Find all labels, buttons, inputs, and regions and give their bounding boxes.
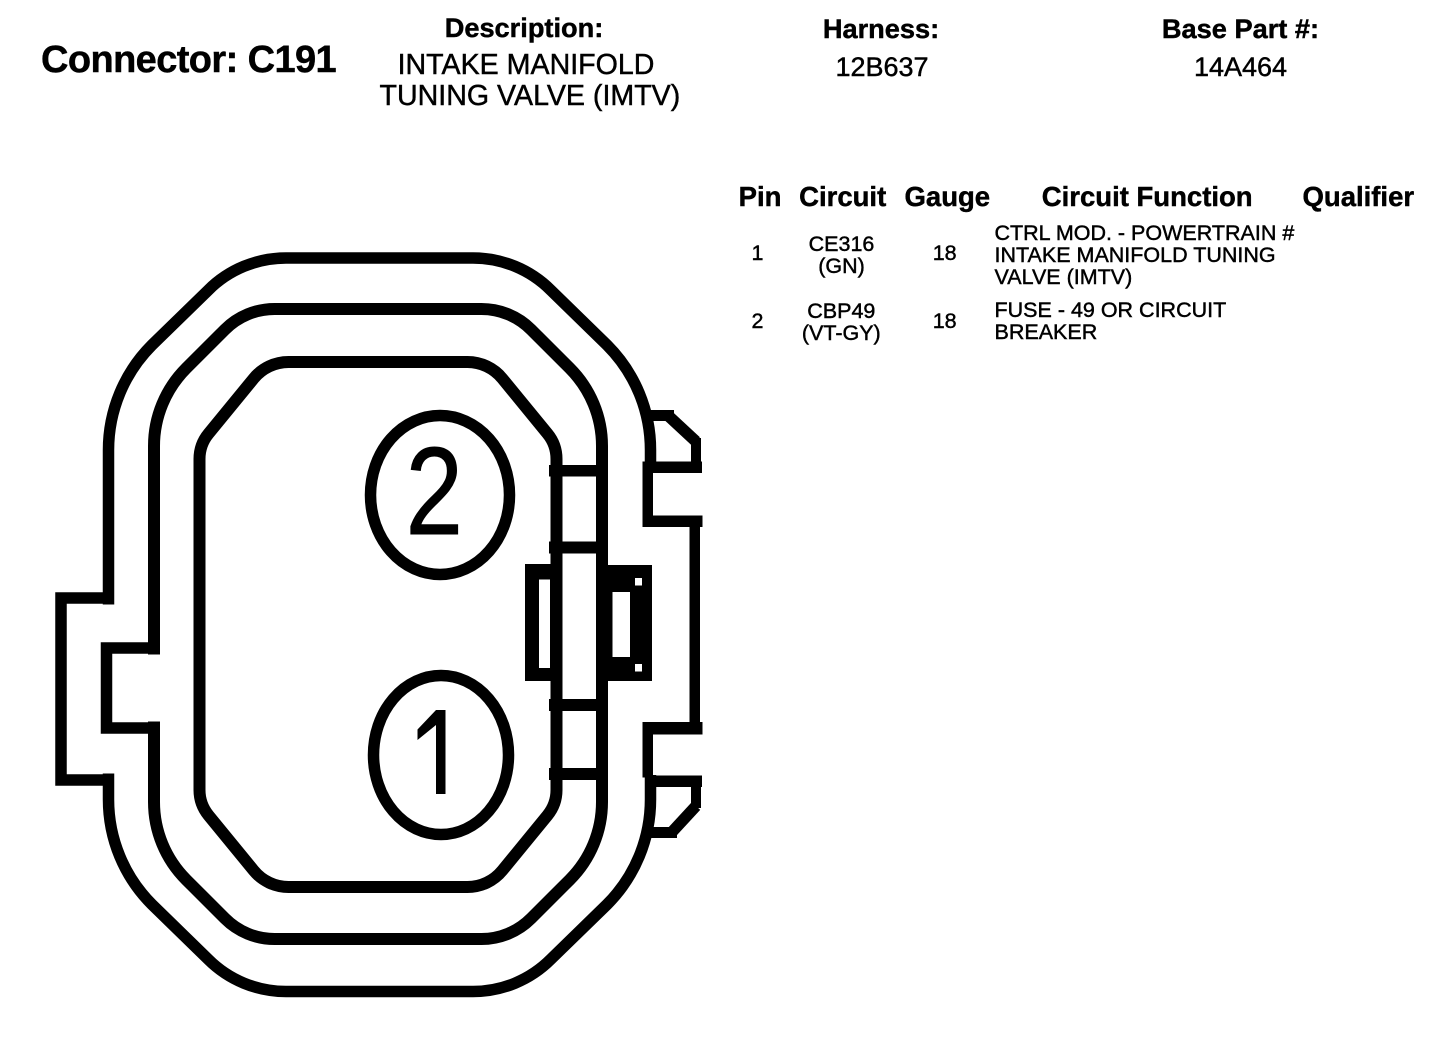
svg-text:2: 2: [406, 423, 463, 561]
